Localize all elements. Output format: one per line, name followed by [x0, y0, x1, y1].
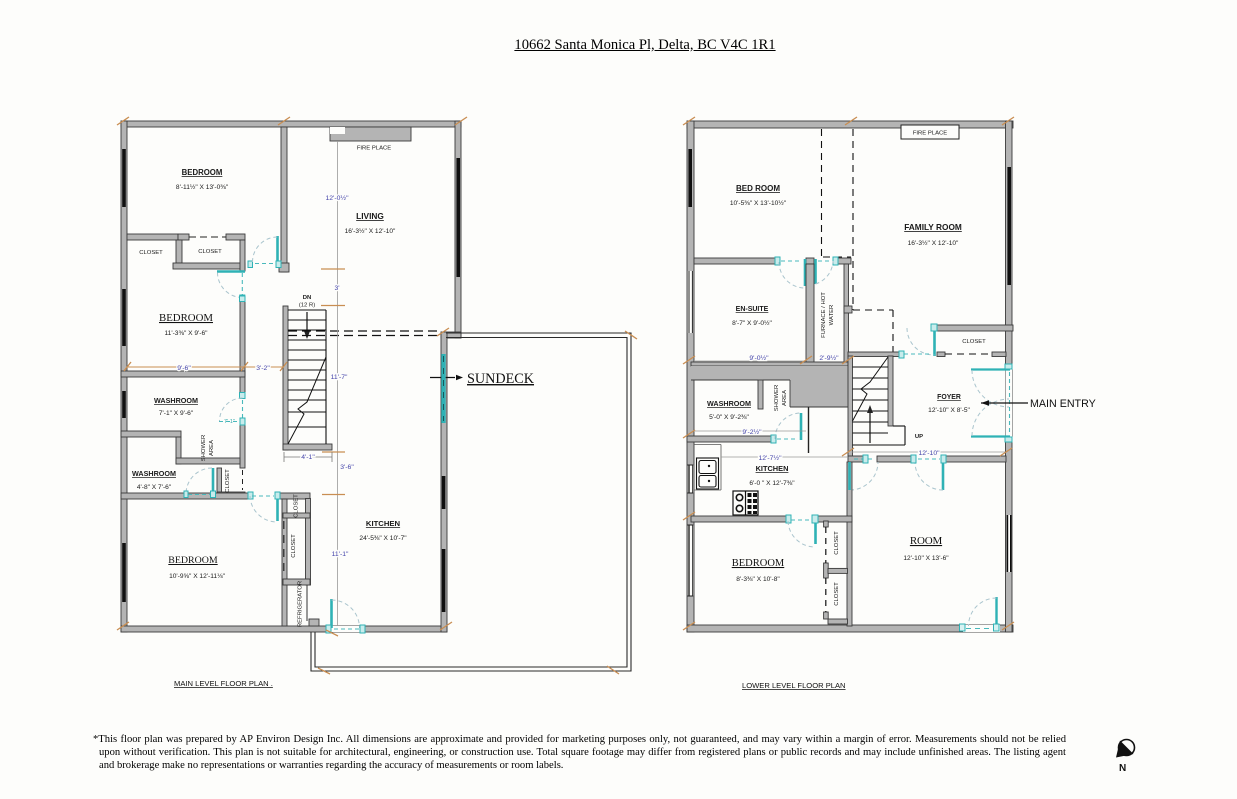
svg-text:REFRIGERATOR: REFRIGERATOR [298, 581, 304, 627]
svg-text:CLOSET: CLOSET [225, 469, 231, 493]
svg-text:16'-3½" X 12'-10": 16'-3½" X 12'-10" [908, 239, 959, 247]
svg-text:MAIN LEVEL FLOOR PLAN .: MAIN LEVEL FLOOR PLAN . [174, 679, 273, 688]
svg-text:BED ROOM: BED ROOM [736, 184, 780, 193]
svg-text:SHOWER: SHOWER [201, 435, 207, 462]
svg-text:8'-7" X 9'-0½": 8'-7" X 9'-0½" [732, 319, 772, 327]
svg-text:CLOSET: CLOSET [834, 531, 840, 555]
svg-text:4'-8" X 7'-6": 4'-8" X 7'-6" [137, 484, 172, 491]
svg-text:EN-SUITE: EN-SUITE [736, 306, 769, 313]
svg-text:LIVING: LIVING [356, 211, 384, 221]
svg-text:CLOSET: CLOSET [962, 339, 986, 345]
svg-text:SHOWER: SHOWER [774, 385, 780, 412]
svg-text:(12 R): (12 R) [299, 303, 315, 309]
svg-text:7'-1" X 9'-6": 7'-1" X 9'-6" [159, 410, 194, 417]
svg-text:AREA: AREA [209, 440, 215, 456]
svg-text:CLOSET: CLOSET [291, 534, 297, 558]
svg-text:BEDROOM: BEDROOM [168, 555, 218, 566]
svg-text:BEDROOM: BEDROOM [182, 168, 223, 177]
svg-text:SUNDECK: SUNDECK [467, 371, 535, 387]
svg-text:CLOSET: CLOSET [834, 582, 840, 606]
svg-text:FIRE PLACE: FIRE PLACE [913, 131, 947, 137]
svg-text:10'-5⅜" X 13'-10½": 10'-5⅜" X 13'-10½" [730, 199, 787, 207]
svg-text:WASHROOM: WASHROOM [132, 469, 176, 478]
svg-text:BEDROOM: BEDROOM [732, 558, 785, 569]
svg-text:11'-1": 11'-1" [332, 551, 349, 558]
svg-text:16'-3½" X 12'-10": 16'-3½" X 12'-10" [345, 227, 396, 235]
svg-text:12'-0½": 12'-0½" [326, 194, 350, 202]
svg-text:N: N [1119, 763, 1126, 774]
svg-text:7'-1": 7'-1" [224, 419, 235, 425]
svg-text:3': 3' [334, 285, 339, 292]
svg-text:3'-6": 3'-6" [340, 464, 354, 471]
svg-text:WASHROOM: WASHROOM [707, 399, 751, 408]
svg-text:BEDROOM: BEDROOM [159, 312, 213, 324]
svg-text:FOYER: FOYER [937, 394, 961, 401]
svg-text:FURNACE / HOT: FURNACE / HOT [821, 292, 827, 338]
svg-text:4'-1": 4'-1" [301, 454, 315, 461]
svg-text:AREA: AREA [782, 390, 788, 406]
svg-text:CLOSET: CLOSET [198, 249, 222, 255]
svg-text:5'-0" X 9'-2⅜": 5'-0" X 9'-2⅜" [709, 414, 749, 421]
svg-text:KITCHEN: KITCHEN [756, 464, 789, 473]
svg-text:WASHROOM: WASHROOM [154, 396, 198, 405]
svg-text:11'-3⅜" X 9'-6": 11'-3⅜" X 9'-6" [165, 330, 209, 337]
svg-text:CLOSET: CLOSET [294, 494, 300, 518]
svg-text:9'-2½": 9'-2½" [742, 428, 762, 436]
svg-text:3'-2": 3'-2" [256, 365, 270, 372]
svg-text:9'-0½": 9'-0½" [749, 354, 769, 362]
svg-text:KITCHEN: KITCHEN [366, 519, 401, 528]
svg-text:12'-7½": 12'-7½" [759, 454, 783, 462]
svg-text:MAIN ENTRY: MAIN ENTRY [1030, 398, 1096, 410]
svg-text:12'-10": 12'-10" [918, 450, 940, 457]
svg-text:LOWER LEVEL FLOOR PLAN: LOWER LEVEL FLOOR PLAN [742, 681, 846, 690]
svg-text:WATER: WATER [829, 305, 835, 326]
svg-text:6'-0 " X 12'-7⅜": 6'-0 " X 12'-7⅜" [749, 480, 795, 487]
svg-text:8'-3⅜" X 10'-8": 8'-3⅜" X 10'-8" [736, 576, 780, 583]
svg-text:11'-7": 11'-7" [331, 374, 348, 381]
svg-text:10'-9⅝" X 12'-11⅛": 10'-9⅝" X 12'-11⅛" [169, 573, 225, 580]
svg-text:8'-11½" X 13'-0⅜": 8'-11½" X 13'-0⅜" [176, 183, 229, 191]
svg-text:12'-10" X 8'-5": 12'-10" X 8'-5" [928, 407, 970, 414]
svg-text:CLOSET: CLOSET [139, 250, 163, 256]
svg-text:FAMILY ROOM: FAMILY ROOM [904, 222, 962, 232]
svg-text:24'-5⅜" X 10'-7": 24'-5⅜" X 10'-7" [359, 535, 407, 542]
svg-text:ROOM: ROOM [910, 535, 943, 547]
svg-text:UP: UP [915, 434, 923, 440]
svg-text:2'-9½": 2'-9½" [819, 354, 839, 362]
svg-text:DN: DN [303, 295, 312, 301]
svg-text:9'-6": 9'-6" [177, 365, 191, 372]
svg-text:12'-10" X 13'-6": 12'-10" X 13'-6" [903, 555, 949, 562]
svg-text:FIRE PLACE: FIRE PLACE [357, 146, 391, 152]
